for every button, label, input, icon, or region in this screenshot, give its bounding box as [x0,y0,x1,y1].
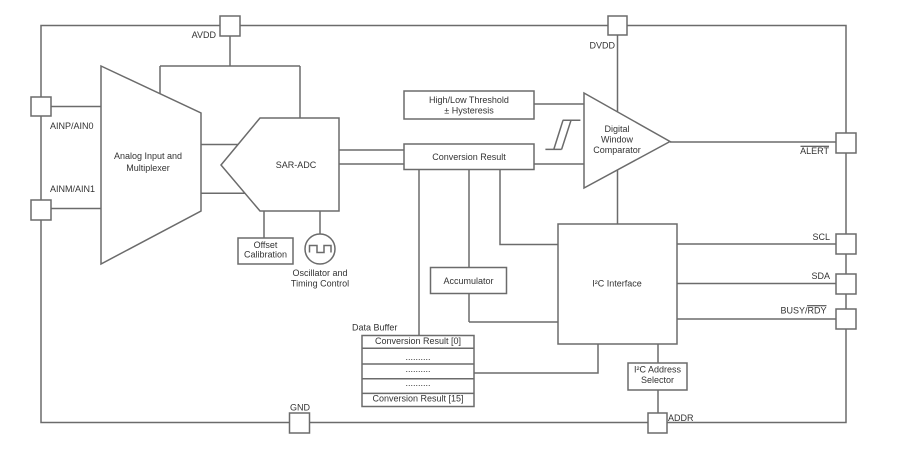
svg-text:Conversion Result [0]: Conversion Result [0] [375,336,461,346]
svg-text:I²C Address: I²C Address [634,365,682,375]
svg-text:SDA: SDA [811,271,830,281]
svg-text:Conversion Result [15]: Conversion Result [15] [372,394,463,404]
svg-text:± Hysteresis: ± Hysteresis [444,106,494,116]
svg-text:Conversion Result: Conversion Result [432,152,506,162]
svg-text:Data Buffer: Data Buffer [352,323,397,333]
svg-text:Calibration: Calibration [244,250,287,260]
svg-text:Offset: Offset [254,240,278,250]
svg-text:SCL: SCL [812,232,830,242]
svg-text:..........: .......... [405,352,430,362]
svg-text:SAR-ADC: SAR-ADC [276,160,317,170]
svg-text:Selector: Selector [641,375,674,385]
svg-text:Multiplexer: Multiplexer [126,163,170,173]
svg-text:High/Low Threshold: High/Low Threshold [429,95,509,105]
svg-text:Oscillator and: Oscillator and [292,268,347,278]
svg-text:Timing Control: Timing Control [291,279,349,289]
svg-text:BUSY/RDY: BUSY/RDY [780,306,826,316]
svg-text:GND: GND [290,403,311,413]
svg-text:Digital: Digital [604,124,629,134]
svg-text:AVDD: AVDD [192,30,217,40]
svg-text:..........: .......... [405,364,430,374]
svg-text:Comparator: Comparator [593,145,641,155]
svg-text:AINM/AIN1: AINM/AIN1 [50,184,95,194]
svg-text:..........: .......... [405,378,430,388]
svg-text:DVDD: DVDD [589,41,615,51]
svg-text:Accumulator: Accumulator [443,276,493,286]
svg-text:AINP/AIN0: AINP/AIN0 [50,121,94,131]
svg-text:Window: Window [601,135,634,145]
svg-text:Analog Input and: Analog Input and [114,151,182,161]
svg-text:ADDR: ADDR [668,413,694,423]
svg-text:ALERT: ALERT [800,146,829,156]
svg-text:I²C Interface: I²C Interface [592,279,642,289]
